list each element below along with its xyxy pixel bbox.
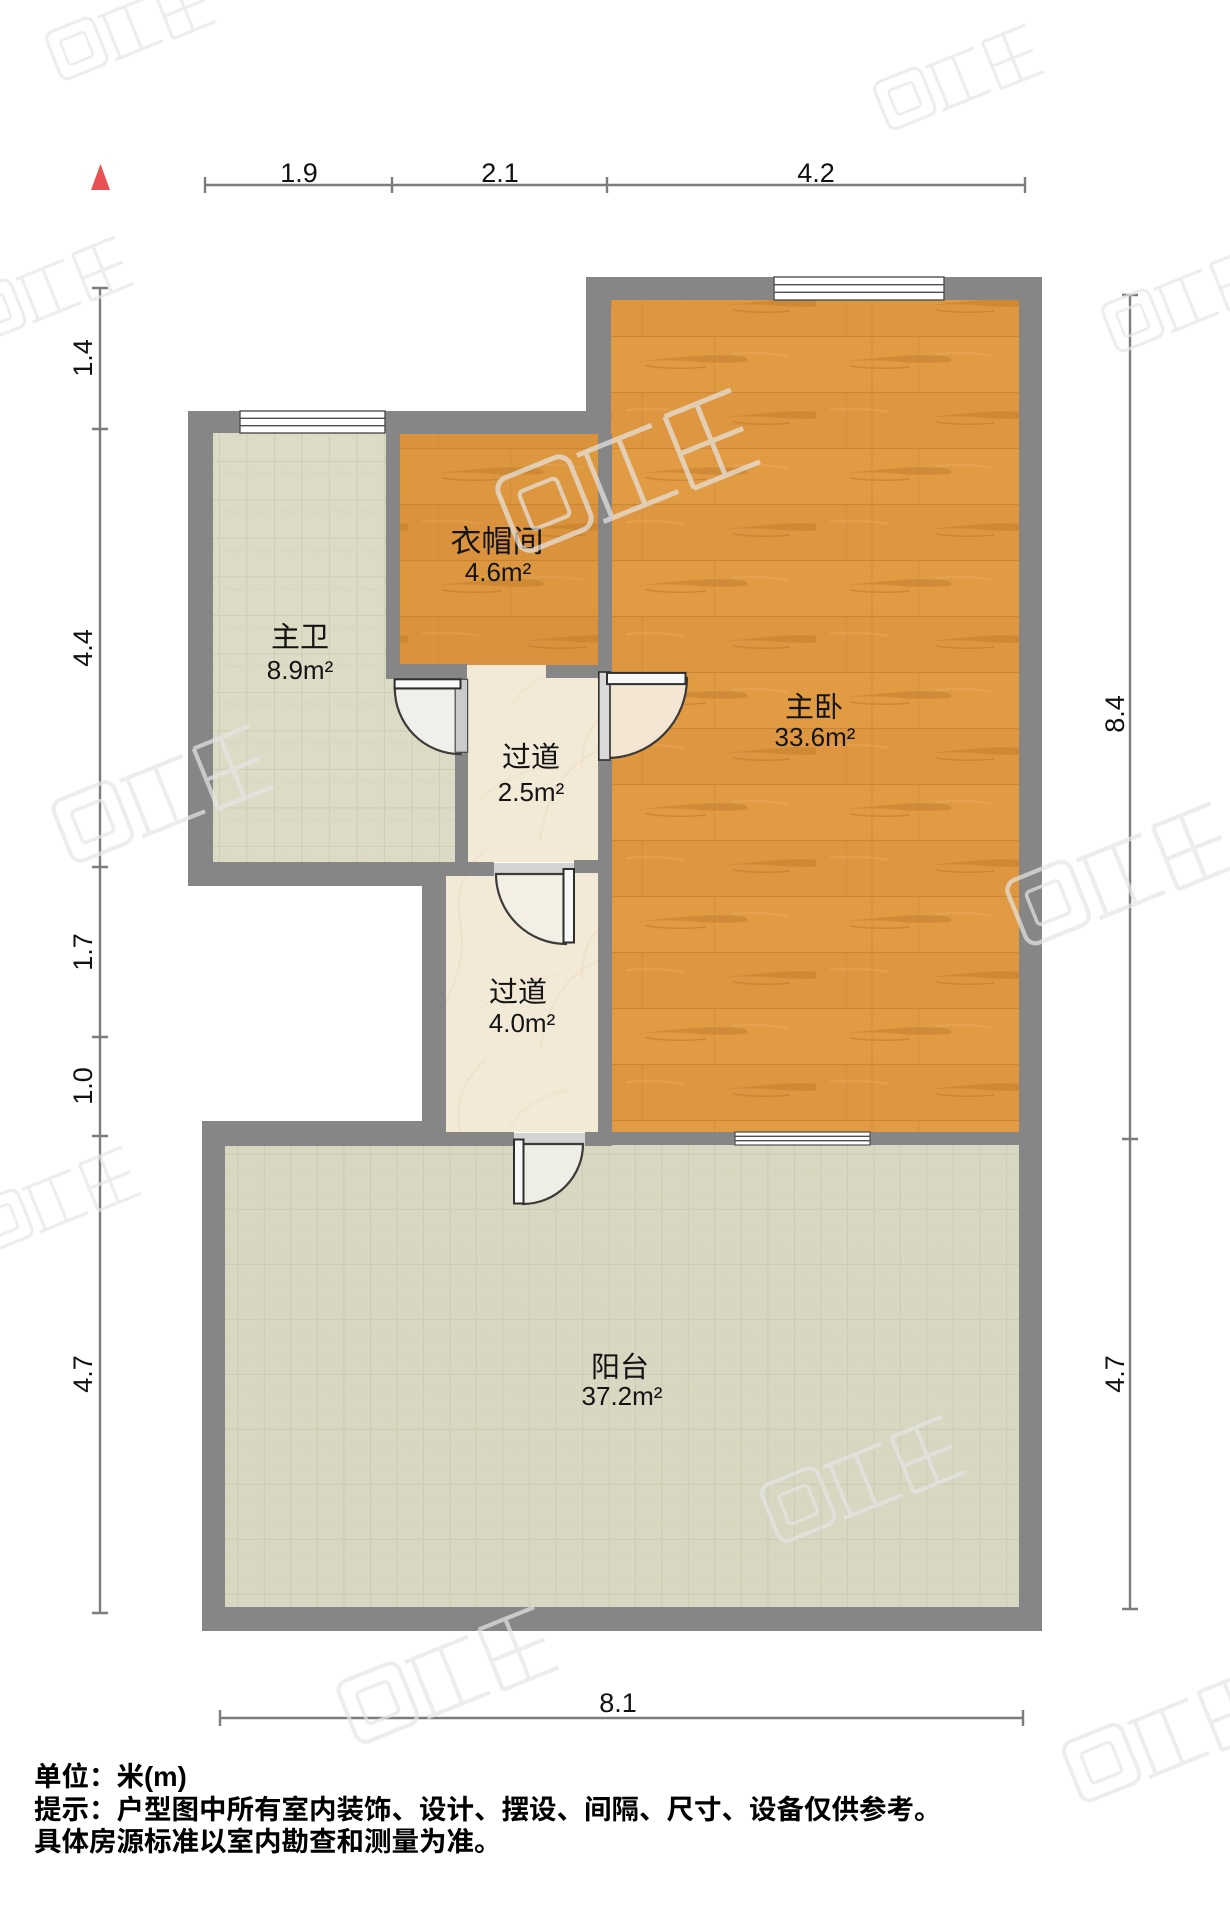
svg-text:1.4: 1.4 <box>68 339 98 377</box>
svg-text:4.6m²: 4.6m² <box>465 557 532 587</box>
svg-text:(m): (m) <box>144 1761 187 1792</box>
svg-text:4.7: 4.7 <box>1100 1355 1130 1393</box>
svg-text:8.4: 8.4 <box>1100 695 1130 733</box>
svg-text:1.0: 1.0 <box>68 1067 98 1105</box>
svg-text:1.9: 1.9 <box>280 158 318 188</box>
svg-text:8.1: 8.1 <box>599 1688 637 1718</box>
svg-text:37.2m²: 37.2m² <box>582 1381 663 1411</box>
svg-text:1.7: 1.7 <box>68 933 98 971</box>
svg-text:4.7: 4.7 <box>68 1355 98 1393</box>
svg-text:4.2: 4.2 <box>797 158 835 188</box>
svg-text:4.0m²: 4.0m² <box>489 1008 556 1038</box>
svg-text:2.1: 2.1 <box>481 158 519 188</box>
svg-text:4.4: 4.4 <box>68 629 98 667</box>
svg-text:8.9m²: 8.9m² <box>267 655 334 685</box>
svg-text:2.5m²: 2.5m² <box>498 777 565 807</box>
svg-text:33.6m²: 33.6m² <box>775 722 856 752</box>
